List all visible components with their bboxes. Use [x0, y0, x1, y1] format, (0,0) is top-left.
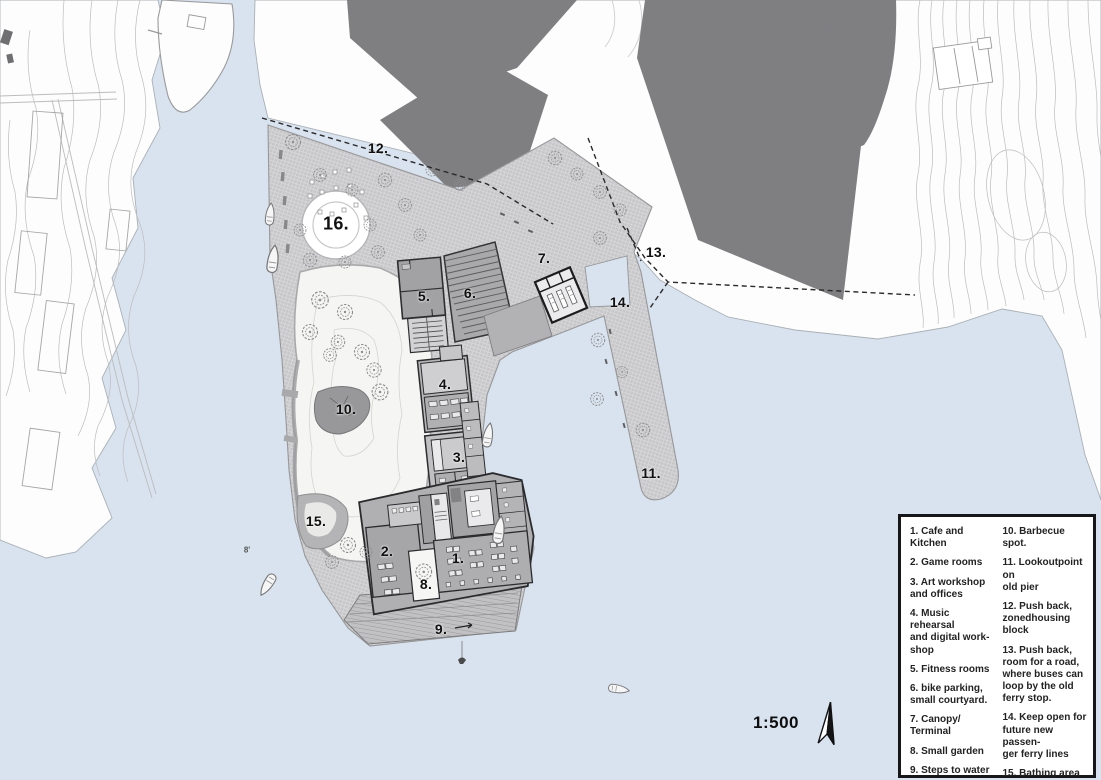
map-number-label: 6. — [464, 285, 476, 301]
map-number-label: 13. — [646, 244, 666, 260]
legend-item: 15. Bathing area — [1003, 768, 1088, 780]
legend-column-left: 1. Cafe and Kitchen2. Game rooms3. Art w… — [910, 526, 995, 771]
legend-item: 13. Push back, room for a road, where bu… — [1003, 645, 1088, 706]
map-number-label: 14. — [610, 294, 630, 310]
legend-item: 14. Keep open for future new passen- ger… — [1003, 712, 1088, 761]
legend-column-right: 10. Barbecue spot.11. Lookoutpoint on ol… — [1003, 526, 1088, 771]
legend-item: 10. Barbecue spot. — [1003, 526, 1088, 550]
legend-item: 8. Small garden — [910, 746, 995, 758]
map-number-label: 16. — [323, 214, 349, 235]
depth-mark: 8' — [244, 546, 250, 555]
legend-item: 4. Music rehearsal and digital work- sho… — [910, 608, 995, 657]
map-number-label: 15. — [306, 513, 326, 529]
legend-item: 3. Art workshop and offices — [910, 577, 995, 601]
building-connector — [439, 345, 462, 361]
map-number-label: 9. — [435, 621, 447, 637]
map-number-label: 12. — [368, 140, 388, 156]
legend-item: 1. Cafe and Kitchen — [910, 526, 995, 550]
map-number-label: 4. — [439, 376, 451, 392]
map-number-label: 5. — [418, 288, 430, 304]
legend-item: 11. Lookoutpoint on old pier — [1003, 557, 1088, 594]
legend-box: 1. Cafe and Kitchen2. Game rooms3. Art w… — [898, 514, 1096, 778]
map-number-label: 10. — [336, 401, 356, 417]
map-number-label: 8. — [420, 576, 432, 592]
legend-item: 6. bike parking, small courtyard. — [910, 683, 995, 707]
map-number-label: 11. — [641, 465, 661, 481]
legend-item: 9. Steps to water — [910, 765, 995, 777]
site-plan-canvas: 1.2.3.4.5.6.7.8.9.10.11.12.13.14.15.16. … — [0, 0, 1101, 780]
small-garden-courtyard — [408, 549, 439, 601]
map-number-label: 1. — [452, 550, 464, 566]
north-arrow-icon — [810, 698, 846, 754]
legend-item: 12. Push back, zonedhousing block — [1003, 601, 1088, 638]
legend-item: 5. Fitness rooms — [910, 664, 995, 676]
map-number-label: 3. — [453, 449, 465, 465]
scale-label: 1:500 — [753, 713, 799, 733]
map-number-label: 2. — [381, 543, 393, 559]
map-number-label: 7. — [538, 250, 550, 266]
legend-item: 2. Game rooms — [910, 557, 995, 569]
legend-item: 7. Canopy/ Terminal — [910, 714, 995, 738]
